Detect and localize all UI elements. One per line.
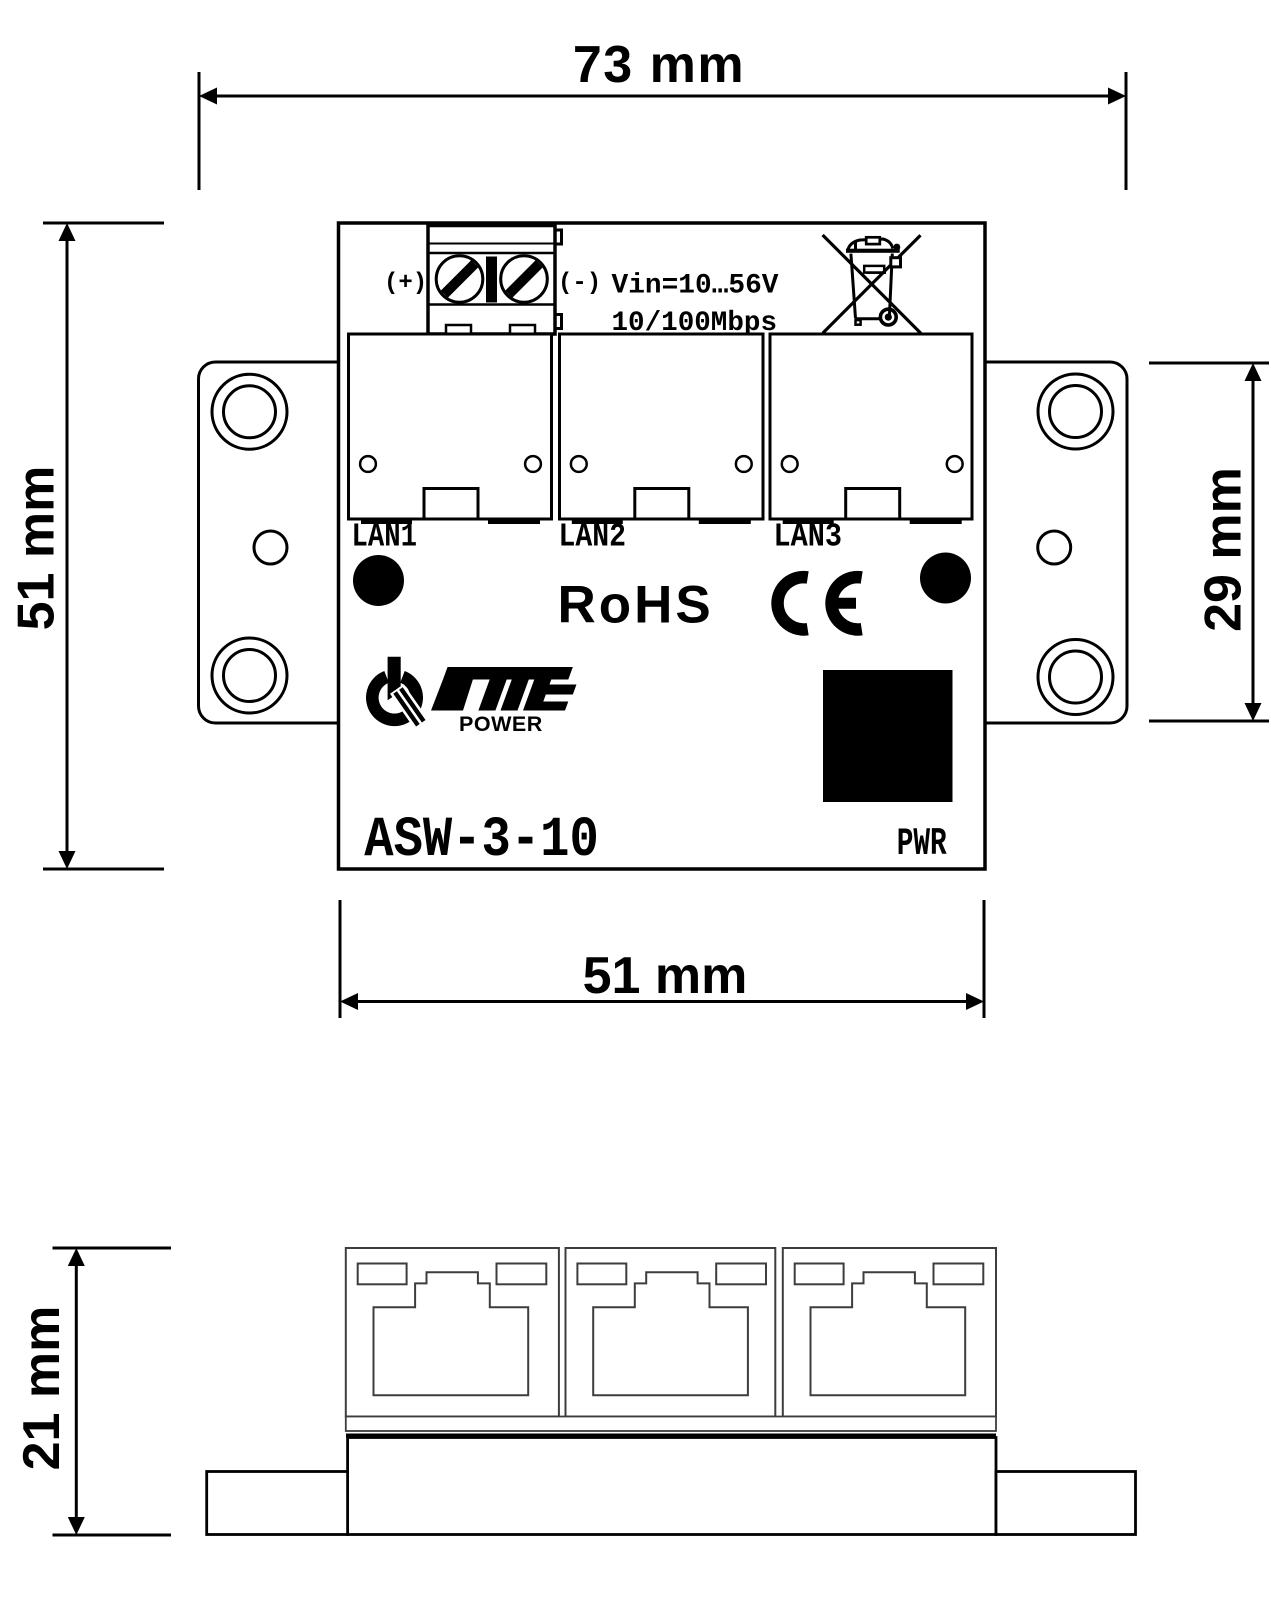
svg-text:POWER: POWER [459,712,543,736]
svg-text:LAN1: LAN1 [352,518,418,556]
svg-text:29 mm: 29 mm [1195,467,1253,632]
svg-text:51 mm: 51 mm [8,466,66,631]
svg-text:PWR: PWR [897,823,948,867]
svg-text:(-): (-) [558,270,601,297]
svg-text:51 mm: 51 mm [583,947,748,1005]
svg-text:LAN2: LAN2 [559,518,627,556]
svg-text:LAN3: LAN3 [774,518,843,556]
svg-text:73 mm: 73 mm [573,36,745,94]
svg-text:Vin=10…56V: Vin=10…56V [612,271,779,302]
svg-text:21 mm: 21 mm [13,1306,71,1471]
svg-text:(+): (+) [384,270,427,297]
svg-text:ASW-3-10: ASW-3-10 [364,808,599,872]
svg-text:RoHS: RoHS [558,576,714,635]
